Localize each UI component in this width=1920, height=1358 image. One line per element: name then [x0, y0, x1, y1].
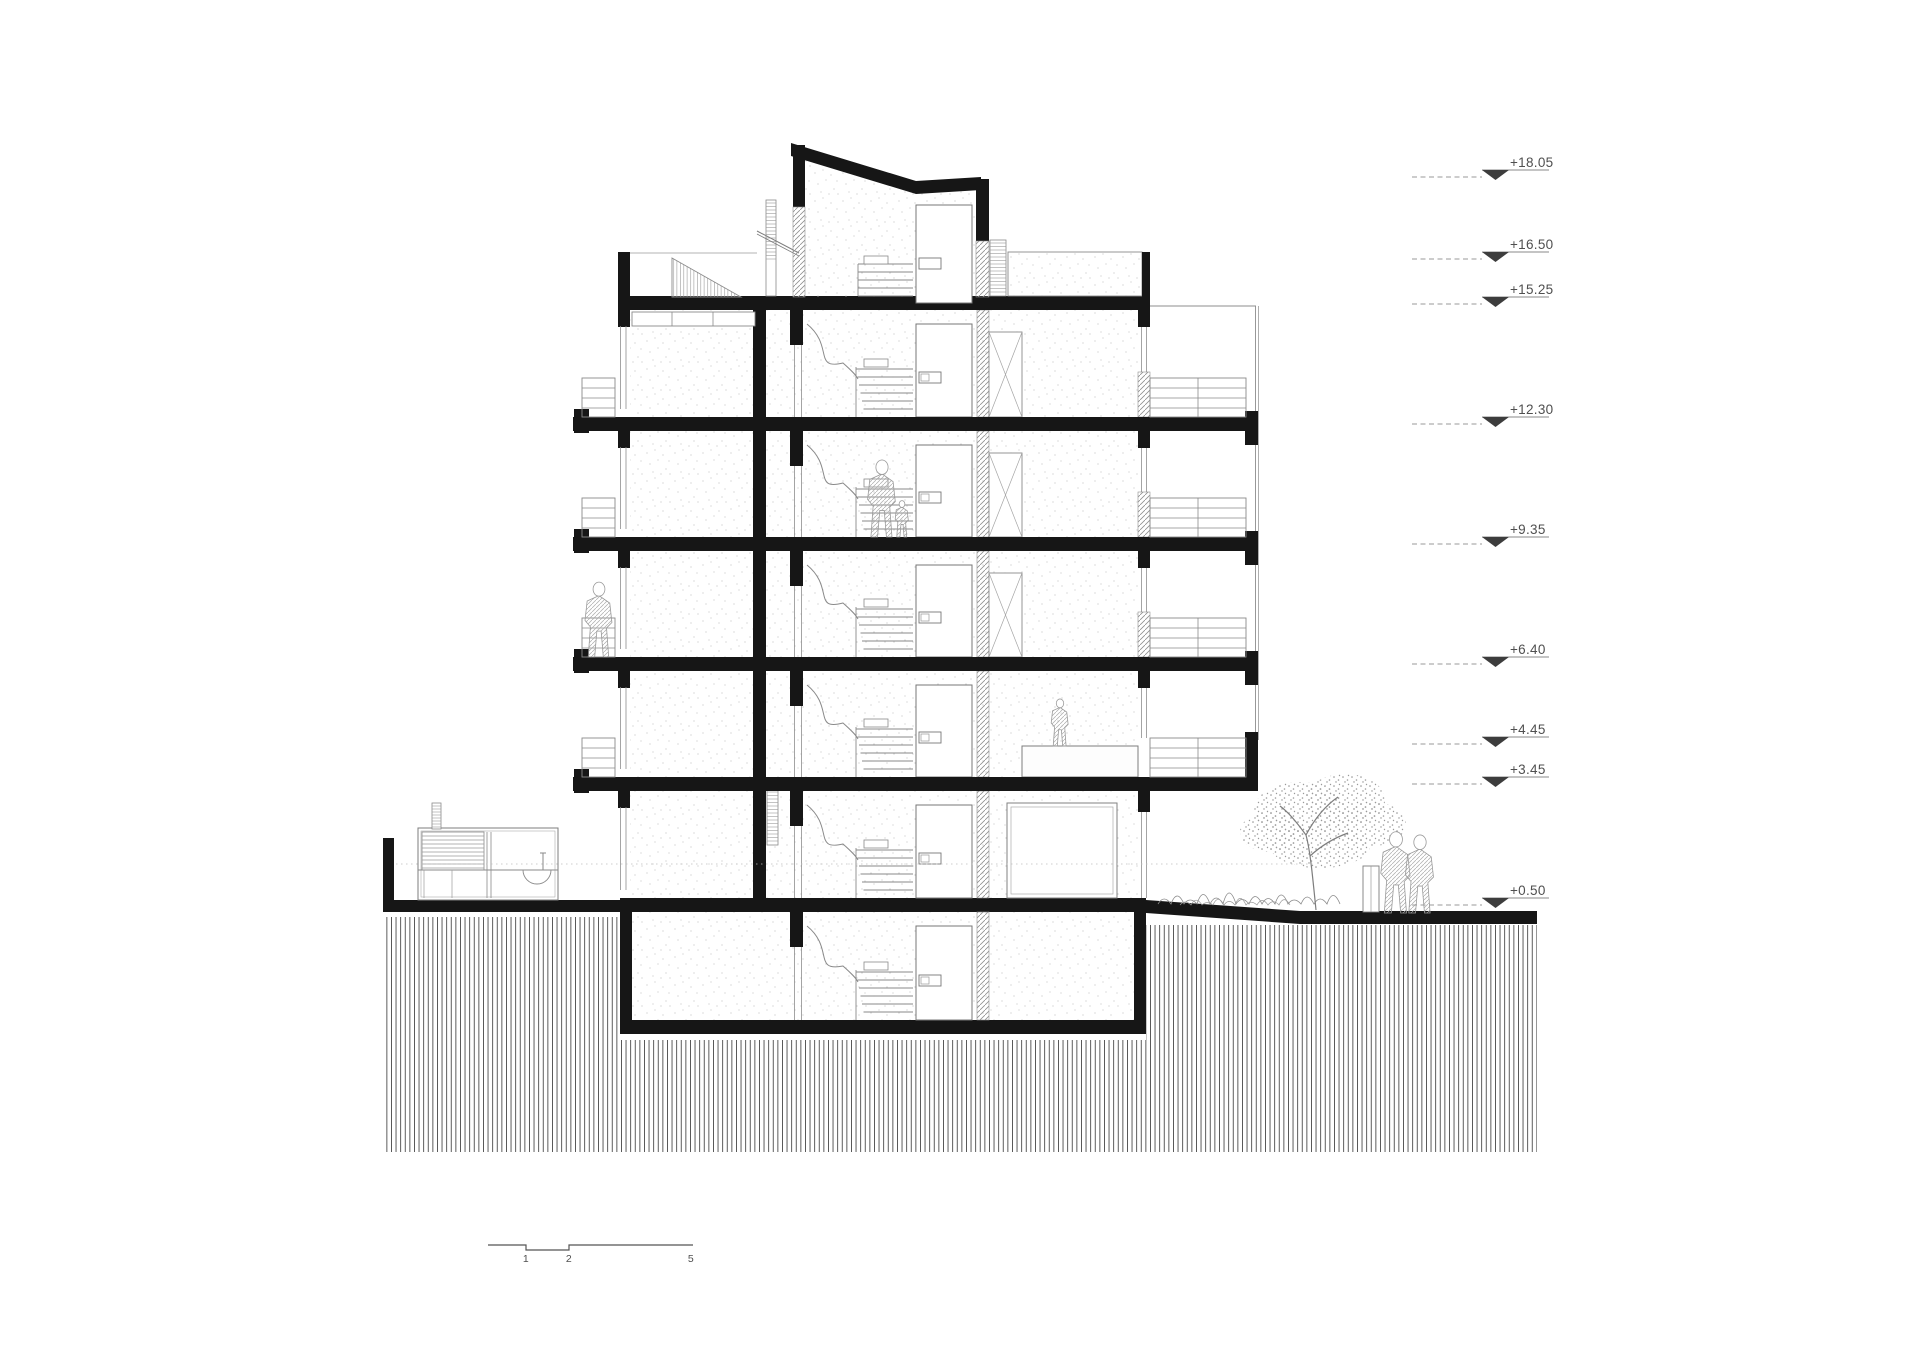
floor-slab — [573, 657, 1258, 671]
clerestory-band — [632, 312, 755, 326]
garden-shed — [418, 803, 558, 900]
shaft-wall-hatched — [977, 310, 989, 417]
ground-slab-right — [1146, 900, 1537, 924]
floor-slab — [573, 417, 1258, 431]
scale-bar-line — [488, 1245, 693, 1250]
floor-slab — [573, 777, 1245, 791]
retaining-wall-left — [383, 838, 394, 912]
scale-bar: 125 — [488, 1245, 694, 1265]
ground-floor-slab — [620, 898, 1146, 912]
level-markers: +18.05+16.50+15.25+12.30+9.35+6.40+4.45+… — [1412, 155, 1553, 908]
level-label: +9.35 — [1510, 522, 1546, 537]
level-triangle-icon — [1482, 537, 1509, 547]
garden-vegetation — [1158, 774, 1406, 912]
left-facade-pier — [618, 551, 630, 568]
left-facade-pier — [618, 431, 630, 448]
left-facade-pier — [618, 310, 630, 327]
person-head — [1390, 832, 1403, 847]
level-label: +0.50 — [1510, 883, 1546, 898]
scale-bar-label: 2 — [566, 1253, 572, 1265]
level-label: +6.40 — [1510, 642, 1546, 657]
tree-canopy — [1270, 824, 1370, 868]
ground-floor-window — [1007, 803, 1117, 898]
level-triangle-icon — [1482, 777, 1509, 787]
shaft-wall-hatched — [977, 671, 989, 777]
person-head — [593, 582, 605, 596]
level-marker: +4.45 — [1412, 722, 1549, 747]
level-marker: +18.05 — [1412, 155, 1553, 180]
level-triangle-icon — [1482, 297, 1509, 307]
level-triangle-icon — [1482, 898, 1509, 908]
core-door — [916, 685, 972, 777]
left-balcony-tip — [574, 529, 589, 553]
shaft-wall-hatched — [977, 431, 989, 537]
split-level-platform — [1022, 746, 1138, 777]
core-door — [916, 324, 972, 417]
terrace-upstand — [1245, 732, 1258, 791]
core-door — [916, 926, 972, 1020]
penthouse-door — [916, 205, 972, 303]
stair-landing — [864, 719, 888, 727]
core-wall-stub — [790, 912, 803, 947]
roof-chimney — [766, 200, 776, 296]
stair-landing — [864, 599, 888, 607]
level-triangle-icon — [1482, 737, 1509, 747]
core-door — [916, 445, 972, 537]
level-triangle-icon — [1482, 170, 1509, 180]
person-head — [1414, 835, 1426, 850]
person-in-garden — [1381, 846, 1410, 913]
stair-landing — [864, 840, 888, 848]
section-svg: +18.05+16.50+15.25+12.30+9.35+6.40+4.45+… — [0, 0, 1920, 1358]
level-label: +18.05 — [1510, 155, 1553, 170]
penthouse-wall-right-hatch — [976, 241, 989, 297]
person-in-garden — [1405, 849, 1433, 913]
roof-parapet-left — [618, 252, 630, 298]
core-wall-stub — [790, 671, 803, 706]
shaft-wall-hatched — [977, 912, 989, 1020]
level-marker: +9.35 — [1412, 522, 1549, 547]
core-wall-stub — [790, 310, 803, 345]
basement-wall-right — [1134, 912, 1146, 1034]
window-parapet-hatched — [1138, 372, 1150, 417]
architectural-section-drawing: +18.05+16.50+15.25+12.30+9.35+6.40+4.45+… — [0, 0, 1920, 1358]
window-parapet-hatched — [1138, 612, 1150, 657]
level-label: +3.45 — [1510, 762, 1546, 777]
left-balcony-tip — [574, 769, 589, 793]
shed-chimney — [432, 803, 441, 829]
roof-parapet-right — [1008, 252, 1142, 296]
right-facade-pier — [1138, 551, 1150, 568]
core-wall-stub — [790, 791, 803, 826]
level-label: +16.50 — [1510, 237, 1553, 252]
level-label: +4.45 — [1510, 722, 1546, 737]
interior-wall — [753, 551, 766, 657]
balcony-edge-beam — [1245, 651, 1258, 685]
floor-slab — [573, 537, 1258, 551]
roof-slab — [618, 296, 1150, 310]
left-facade-pier — [618, 791, 630, 808]
roof-louvre — [990, 240, 1006, 296]
right-facade-pier — [1138, 791, 1150, 812]
basement-floor-slab — [620, 1020, 1146, 1034]
penthouse-wall-right — [976, 179, 989, 241]
level-marker: +16.50 — [1412, 237, 1553, 262]
level-triangle-icon — [1482, 417, 1509, 427]
roof-penthouse — [618, 143, 1150, 308]
flue-duct — [767, 782, 778, 845]
level-triangle-icon — [1482, 252, 1509, 262]
core-wall-stub — [790, 551, 803, 586]
core-door — [916, 565, 972, 657]
core-door — [916, 805, 972, 898]
person-head — [1056, 699, 1063, 708]
scale-bar-label: 1 — [523, 1253, 529, 1265]
ground-slab-left — [385, 900, 632, 912]
core-wall-stub — [790, 431, 803, 466]
level-label: +15.25 — [1510, 282, 1553, 297]
interior-wall — [753, 791, 766, 898]
level-marker: +3.45 — [1412, 762, 1549, 787]
left-balcony-tip — [574, 649, 589, 673]
level-marker: +15.25 — [1412, 282, 1553, 307]
scale-bar-label: 5 — [688, 1253, 694, 1265]
basement-wall-left — [620, 912, 632, 1034]
level-marker: +12.30 — [1412, 402, 1553, 427]
penthouse-wall-left — [793, 145, 805, 207]
shaft-wall-hatched — [977, 791, 989, 898]
penthouse-wall-left-hatch — [793, 207, 805, 297]
right-facade-pier — [1138, 431, 1150, 448]
person-head — [876, 460, 888, 474]
level-label: +12.30 — [1510, 402, 1553, 417]
stair-landing — [864, 962, 888, 970]
penthouse-door-handle — [919, 258, 941, 269]
interior-wall — [753, 431, 766, 537]
balcony-edge-beam — [1245, 411, 1258, 445]
stair-landing — [864, 359, 888, 367]
right-facade-pier — [1138, 310, 1150, 327]
balcony-edge-beam — [1245, 531, 1258, 565]
level-marker: +6.40 — [1412, 642, 1549, 667]
shaft-wall-hatched — [977, 551, 989, 657]
level-marker: +0.50 — [1412, 883, 1549, 908]
window-parapet-hatched — [1138, 492, 1150, 537]
interior-wall — [753, 671, 766, 777]
level-triangle-icon — [1482, 657, 1509, 667]
right-facade-pier — [1138, 671, 1150, 688]
left-balcony-tip — [574, 409, 589, 433]
person-head — [899, 501, 905, 508]
left-facade-pier — [618, 671, 630, 688]
roof-parapet-right-end — [1142, 252, 1150, 308]
